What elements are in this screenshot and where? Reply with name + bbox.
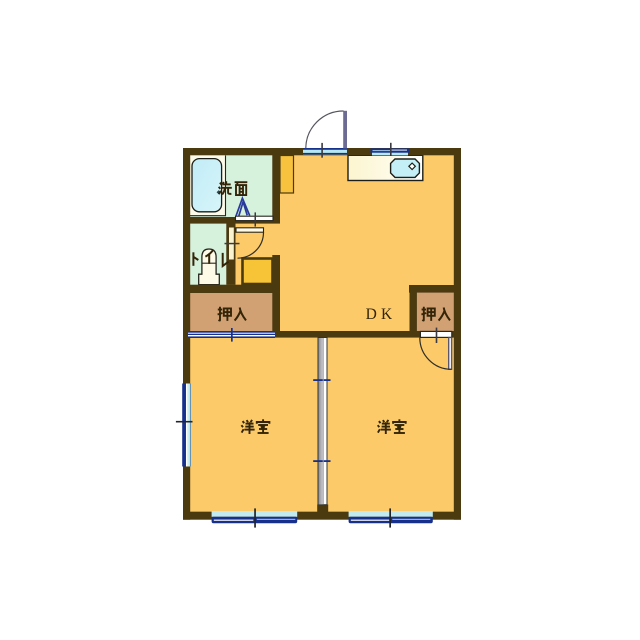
svg-text:K: K xyxy=(381,306,393,323)
svg-text:D: D xyxy=(366,306,377,323)
